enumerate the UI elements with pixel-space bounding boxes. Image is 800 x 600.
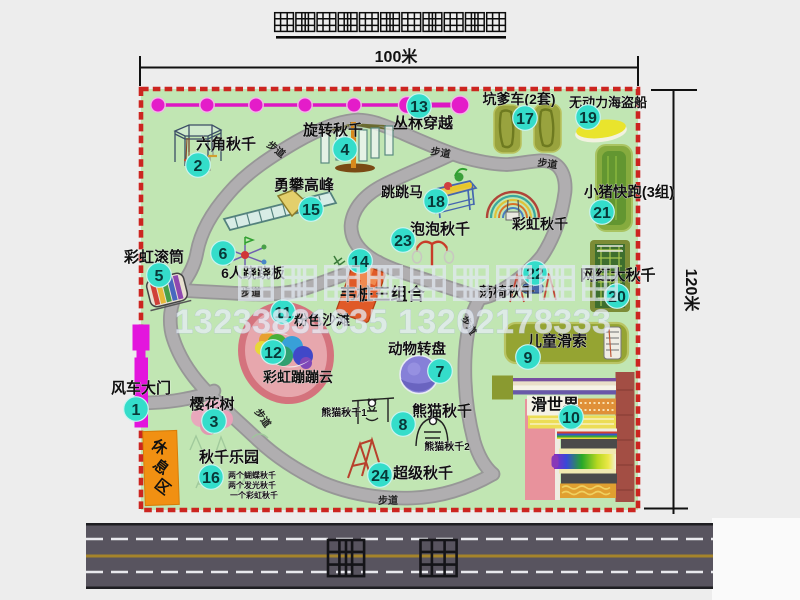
svg-text:16: 16	[202, 470, 220, 487]
svg-text:熊猫秋千1: 熊猫秋千1	[321, 406, 367, 419]
svg-text:泡泡秋千: 泡泡秋千	[410, 220, 470, 238]
svg-text:1: 1	[132, 402, 141, 419]
svg-text:动物转盘: 动物转盘	[388, 340, 446, 358]
svg-text:勇攀高峰: 勇攀高峰	[274, 176, 335, 194]
svg-text:2: 2	[194, 158, 203, 175]
svg-text:熊猫秋千: 熊猫秋千	[412, 402, 472, 420]
svg-text:4: 4	[341, 142, 350, 159]
svg-text:一个彩虹秋千: 一个彩虹秋千	[230, 490, 278, 500]
svg-text:12: 12	[264, 345, 282, 362]
svg-text:小猪快跑(3组): 小猪快跑(3组)	[584, 183, 674, 201]
svg-text:六角秋千: 六角秋千	[196, 135, 256, 153]
svg-text:跳跳马: 跳跳马	[381, 184, 423, 200]
svg-text:秋千乐园: 秋千乐园	[199, 448, 259, 466]
svg-text:19: 19	[579, 110, 597, 127]
svg-text:8: 8	[399, 417, 408, 434]
svg-text:两个蝴蝶秋千: 两个蝴蝶秋千	[228, 470, 276, 480]
svg-text:18: 18	[427, 194, 445, 211]
svg-text:23: 23	[394, 233, 412, 250]
svg-text:5: 5	[155, 268, 164, 285]
svg-text:步道: 步道	[378, 494, 398, 507]
svg-text:120米: 120米	[682, 269, 701, 313]
svg-text:熊猫秋千2: 熊猫秋千2	[424, 440, 470, 453]
svg-text:风车大门: 风车大门	[111, 379, 171, 397]
svg-text:3: 3	[210, 414, 219, 431]
svg-text:彩虹蹦蹦云: 彩虹蹦蹦云	[262, 369, 333, 385]
svg-text:17: 17	[516, 111, 534, 128]
svg-text:两个发光秋千: 两个发光秋千	[228, 480, 276, 490]
svg-text:10: 10	[562, 410, 580, 427]
svg-text:14: 14	[351, 254, 369, 271]
svg-text:13: 13	[410, 99, 428, 116]
svg-text:6: 6	[219, 246, 228, 263]
svg-text:坑爹车(2套): 坑爹车(2套)	[482, 91, 555, 107]
svg-text:15: 15	[302, 202, 320, 219]
svg-text:13233831635 13202178333: 13233831635 13202178333	[175, 303, 612, 341]
svg-text:彩虹滚筒: 彩虹滚筒	[123, 248, 184, 266]
svg-text:21: 21	[593, 205, 611, 222]
svg-text:24: 24	[371, 468, 389, 485]
svg-text:旋转秋千: 旋转秋千	[302, 121, 363, 139]
svg-text:100米: 100米	[375, 47, 419, 66]
svg-text:超级秋千: 超级秋千	[392, 464, 453, 482]
svg-text:9: 9	[524, 350, 533, 367]
svg-text:7: 7	[436, 364, 445, 381]
svg-text:彩虹秋千: 彩虹秋千	[511, 216, 568, 232]
